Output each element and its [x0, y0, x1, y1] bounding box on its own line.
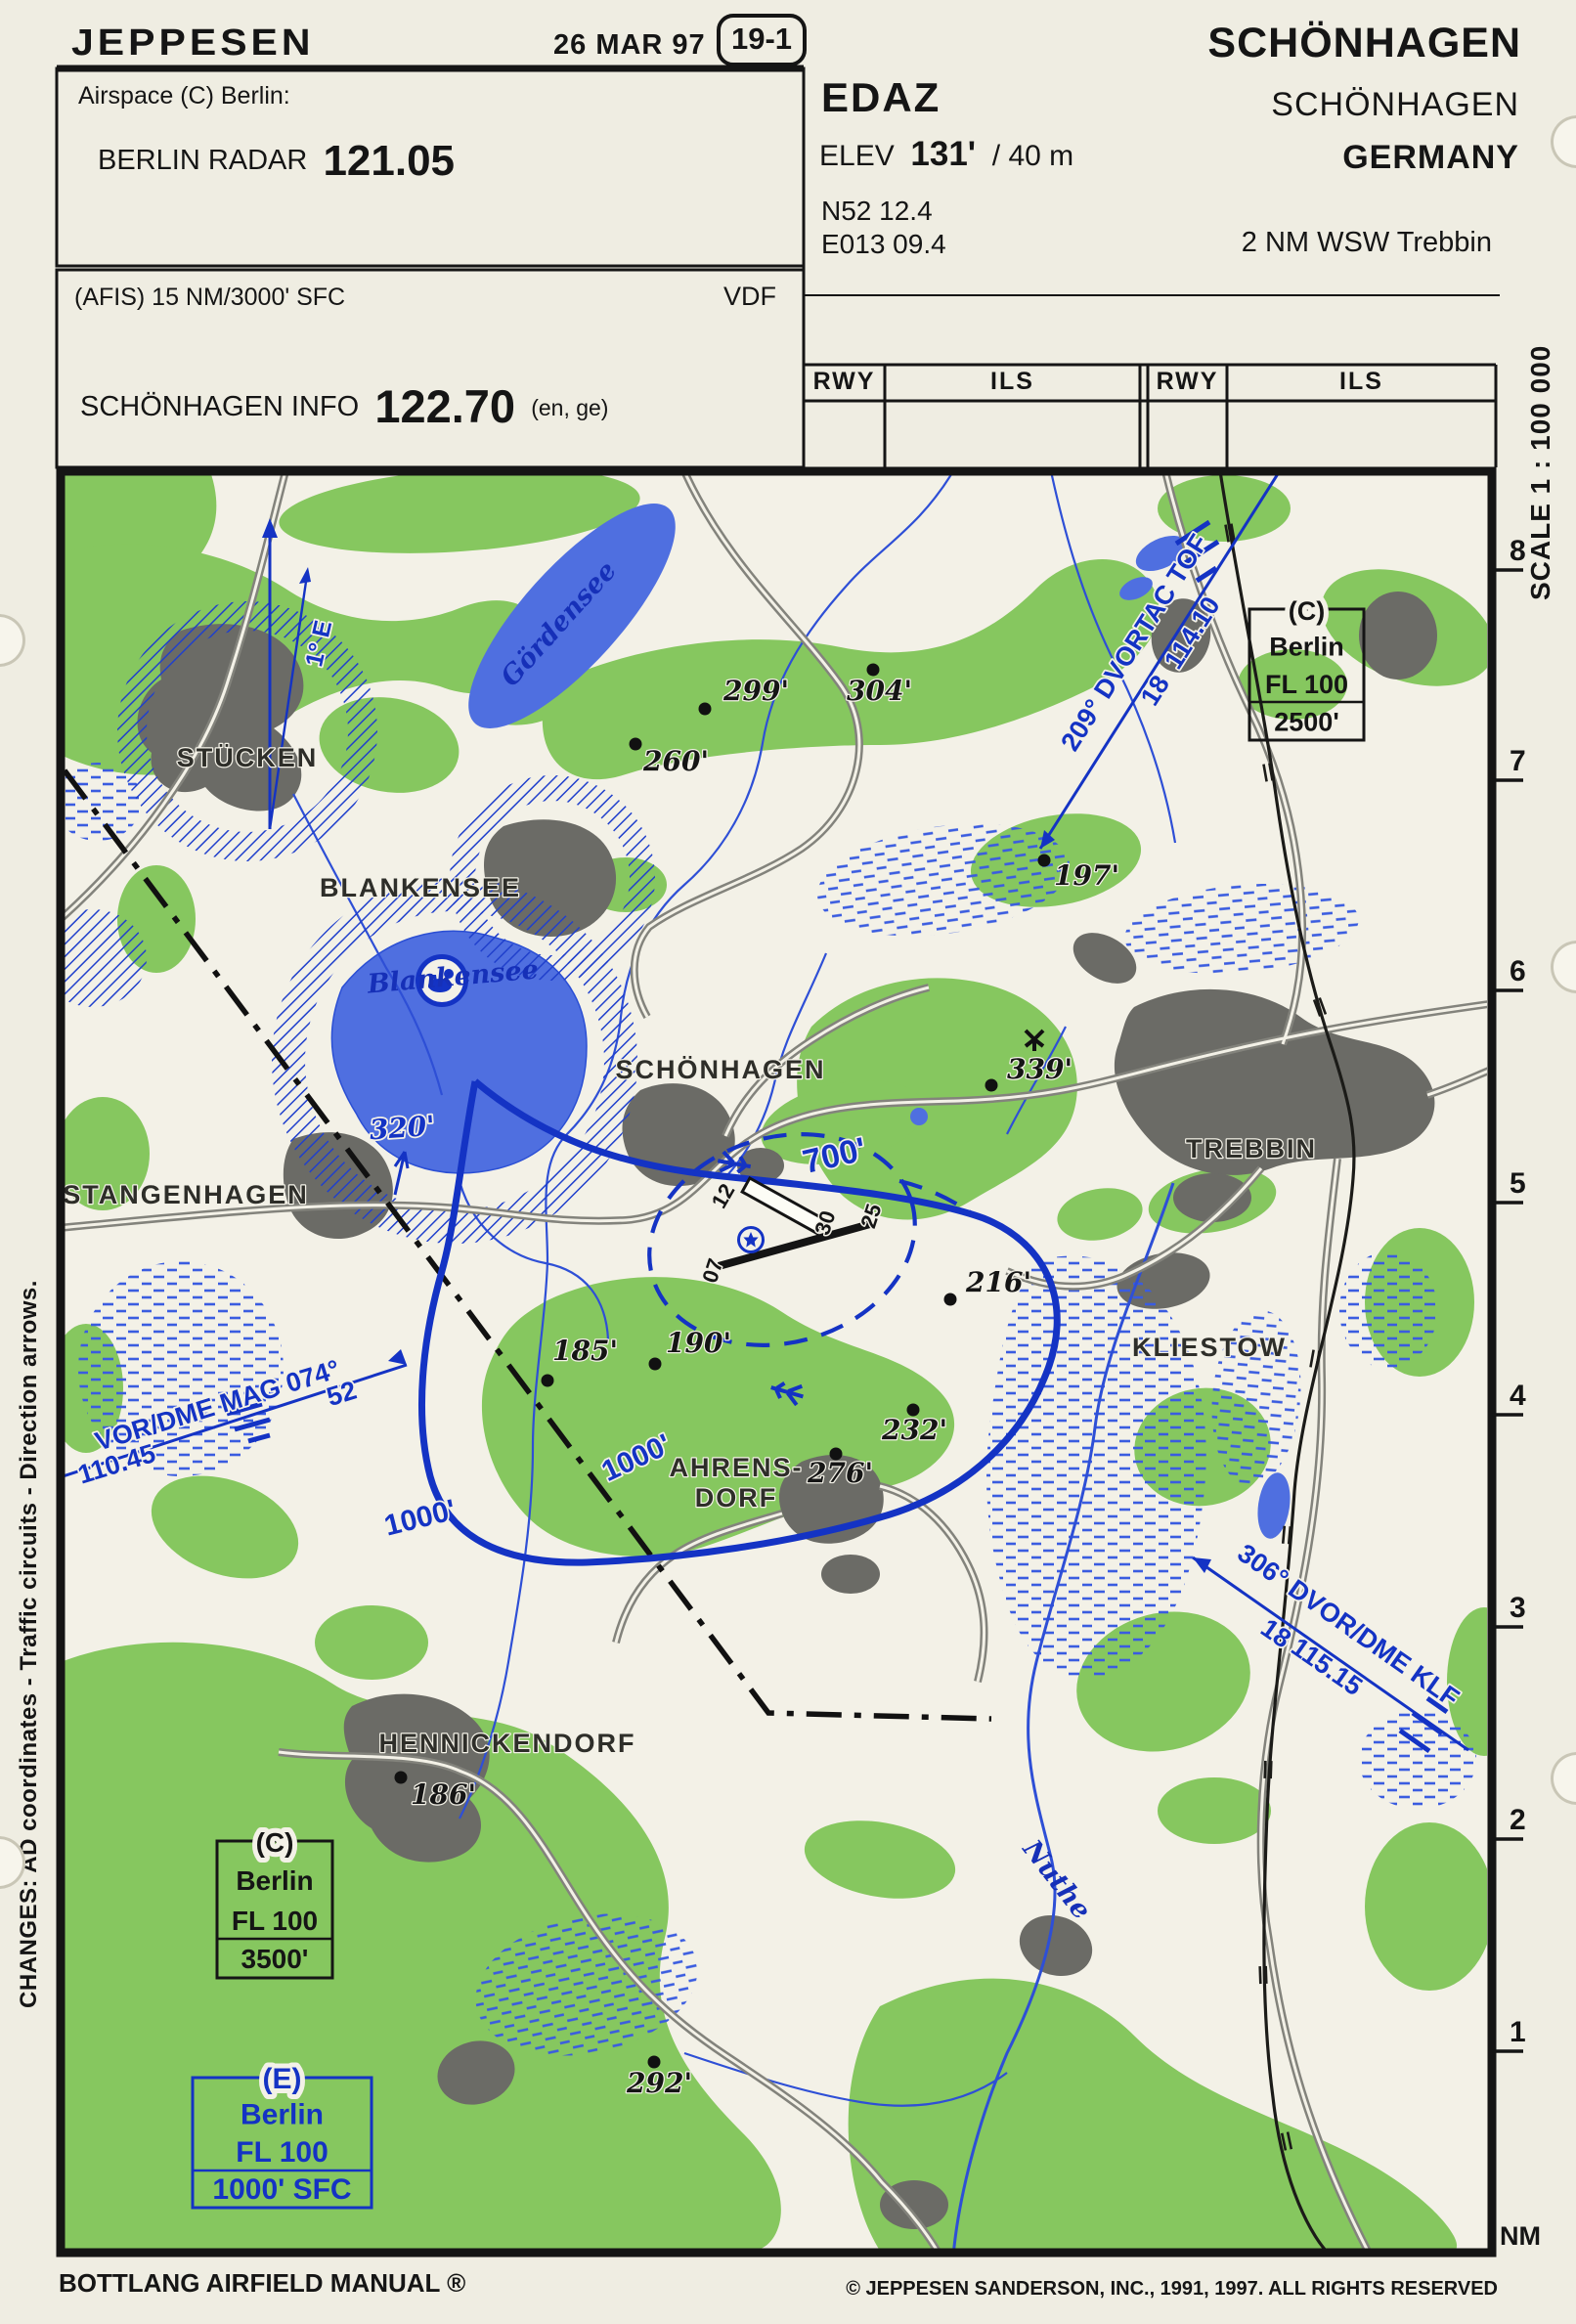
- elevation-dot: [944, 1294, 957, 1306]
- town-label: DORF: [695, 1483, 778, 1513]
- airspace-level: FL 100: [236, 2136, 328, 2169]
- elevation-label: 292': [626, 2067, 692, 2099]
- town-label: AHRENS-: [669, 1453, 803, 1482]
- elevation-dot: [985, 1079, 998, 1092]
- copyright: © JEPPESEN SANDERSON, INC., 1991, 1997. …: [846, 2278, 1498, 2301]
- table-header-ils-2: ILS: [1227, 364, 1496, 397]
- scale-tick-label: 8: [1510, 535, 1526, 567]
- elevation-dot: [649, 1358, 662, 1371]
- radar-frequency: 121.05: [323, 137, 455, 185]
- elevation-label: 197': [1054, 859, 1119, 892]
- scale-unit-label: NM: [1500, 2221, 1541, 2251]
- airport-icao: EDAZ: [821, 74, 941, 121]
- elevation-dot: [542, 1375, 554, 1387]
- elevation-label: 339': [1007, 1053, 1073, 1085]
- elevation-label: 190': [666, 1327, 731, 1359]
- scale-tick-label: 7: [1510, 745, 1526, 777]
- airport-longitude: E013 09.4: [821, 229, 946, 260]
- airspace-class: (E): [263, 2063, 302, 2095]
- elevation-label: 304': [847, 675, 912, 707]
- changes-note: CHANGES: AD coordinates - Traffic circui…: [16, 1280, 43, 2008]
- scale-tick-label: 3: [1510, 1592, 1526, 1624]
- revision-date: 26 MAR 97: [553, 29, 706, 62]
- manual-name: BOTTLANG AIRFIELD MANUAL ®: [59, 2268, 465, 2299]
- elevation-label: 216': [965, 1266, 1031, 1298]
- scale-tick-label: 6: [1510, 955, 1526, 987]
- table-header-rwy-2: RWY: [1148, 364, 1227, 397]
- chart-title-city: SCHÖNHAGEN: [1207, 20, 1521, 67]
- scale-tick-label: 1: [1510, 2016, 1526, 2048]
- radar-station: BERLIN RADAR: [98, 145, 307, 176]
- elevation-dot: [395, 1772, 408, 1784]
- town-label: STÜCKEN: [177, 743, 319, 772]
- elevation-dot: [699, 703, 712, 716]
- scale-bar: 87654321NM: [1492, 535, 1541, 2251]
- elevation-dot: [1038, 855, 1051, 867]
- airspace-class-note: Airspace (C) Berlin:: [78, 82, 290, 110]
- town-label: STANGENHAGEN: [63, 1180, 309, 1209]
- elev-meters: / 40 m: [992, 140, 1073, 172]
- airport-relative-position: 2 NM WSW Trebbin: [1242, 227, 1492, 259]
- elevation-label: 185': [552, 1335, 618, 1367]
- elev-label: ELEV: [819, 140, 895, 172]
- nav-label: 320': [369, 1110, 436, 1147]
- afis-service-range: (AFIS) 15 NM/3000' SFC: [74, 284, 345, 312]
- town-label: HENNICKENDORF: [378, 1729, 635, 1758]
- airspace-area: Berlin: [1269, 633, 1344, 662]
- elevation-label: 186': [411, 1778, 476, 1811]
- chart-graphics: 299'304'260'197'339'216'185'190'232'276'…: [0, 0, 1576, 2324]
- airspace-floor: 3500': [241, 1944, 309, 1974]
- elev-feet: 131': [910, 135, 976, 173]
- chart-title-airport: SCHÖNHAGEN: [1271, 86, 1519, 124]
- airspace-area: Berlin: [241, 2099, 324, 2131]
- town-label: KLIESTOW: [1132, 1333, 1287, 1362]
- elevation-dot: [630, 738, 642, 751]
- chart-title-country: GERMANY: [1342, 139, 1519, 177]
- airport-latitude: N52 12.4: [821, 196, 933, 227]
- town-label: TREBBIN: [1186, 1134, 1317, 1163]
- airspace-level: FL 100: [232, 1906, 318, 1936]
- elevation-label: 232': [881, 1414, 947, 1446]
- scale-tick-label: 2: [1510, 1804, 1526, 1836]
- info-station: SCHÖNHAGEN INFO: [80, 391, 359, 422]
- info-frequency-row: SCHÖNHAGEN INFO 122.70 (en, ge): [80, 379, 608, 433]
- table-header-ils-1: ILS: [885, 364, 1140, 397]
- airspace-level: FL 100: [1265, 670, 1348, 699]
- scale-tick-label: 5: [1510, 1167, 1526, 1200]
- airspace-area: Berlin: [236, 1865, 313, 1896]
- scale-note: SCALE 1 : 100 000: [1525, 345, 1556, 600]
- elevation-label: 260': [642, 745, 709, 777]
- elevation-label: 299': [722, 675, 789, 707]
- vdf-label: VDF: [723, 282, 776, 312]
- info-frequency: 122.70: [374, 380, 515, 432]
- airspace-class: (C): [1289, 596, 1325, 626]
- publisher-logo: JEPPESEN: [71, 22, 315, 64]
- scale-tick-label: 4: [1510, 1380, 1526, 1412]
- town-label: SCHÖNHAGEN: [615, 1055, 825, 1084]
- info-languages: (en, ge): [531, 395, 608, 420]
- chart-page: 299'304'260'197'339'216'185'190'232'276'…: [0, 0, 1576, 2324]
- airport-elevation-row: ELEV 131' / 40 m: [819, 135, 1073, 174]
- chart-index-badge: 19-1: [717, 14, 807, 66]
- table-header-rwy-1: RWY: [804, 364, 885, 397]
- airspace-floor: 2500': [1274, 708, 1339, 737]
- elevation-label: 276': [807, 1457, 873, 1489]
- airspace-class: (C): [256, 1827, 294, 1858]
- airspace-floor: 1000' SFC: [212, 2173, 351, 2206]
- town-label: BLANKENSEE: [320, 873, 521, 902]
- radar-frequency-row: BERLIN RADAR 121.05: [98, 137, 455, 186]
